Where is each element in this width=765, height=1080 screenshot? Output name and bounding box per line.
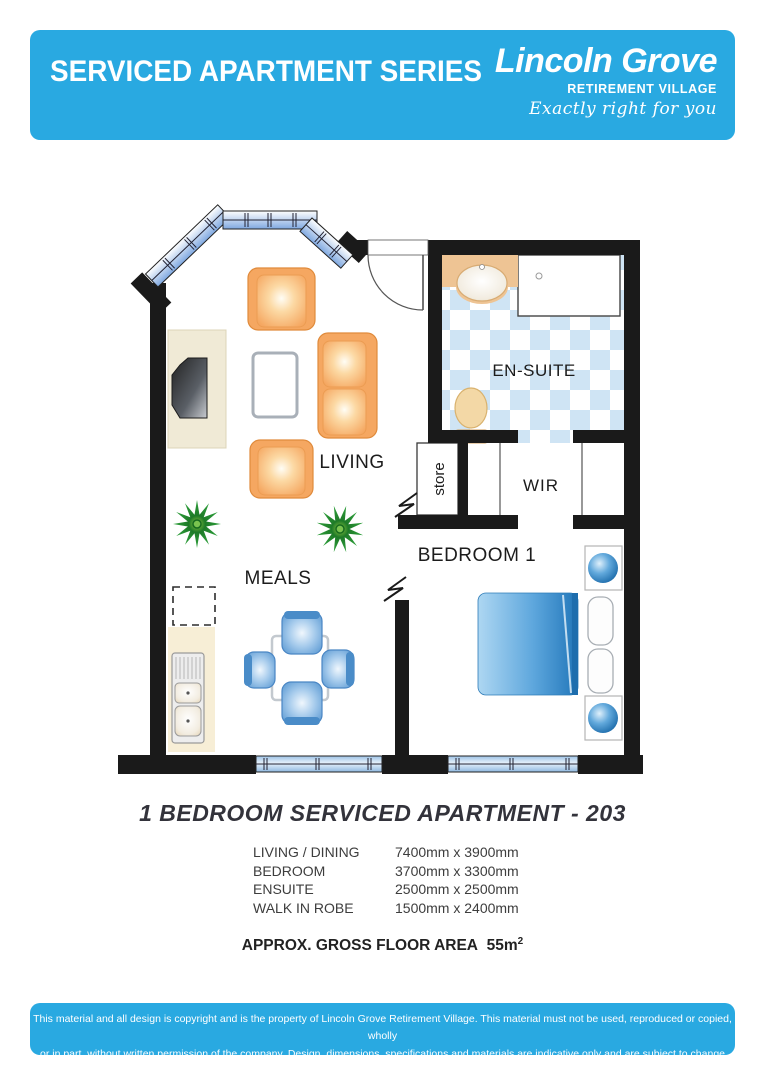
- brand-logo: Lincoln Grove RETIREMENT VILLAGE Exactly…: [495, 43, 717, 119]
- dining-chair-bottom: [282, 682, 322, 725]
- living-label: LIVING: [319, 452, 384, 473]
- sofa: [318, 333, 377, 438]
- meals-kitchen: [168, 587, 354, 752]
- header-banner: SERVICED APARTMENT SERIES Lincoln Grove …: [30, 30, 735, 140]
- shower-drain: [536, 273, 542, 279]
- footer-disclaimer: This material and all design is copyrigh…: [30, 1003, 735, 1055]
- dimension-label: ENSUITE: [253, 880, 395, 899]
- dimension-value: 2500mm x 2500mm: [395, 880, 519, 899]
- dining-chair-left: [244, 652, 275, 688]
- armchair-2: [250, 440, 313, 498]
- bedroom-label: BEDROOM 1: [418, 545, 537, 566]
- dimension-label: BEDROOM: [253, 862, 395, 881]
- window-bedroom: [448, 756, 578, 772]
- footer-line-2: or in part, without written permission o…: [30, 1046, 735, 1080]
- page: SERVICED APARTMENT SERIES Lincoln Grove …: [0, 0, 765, 1080]
- series-title: SERVICED APARTMENT SERIES: [50, 55, 482, 89]
- entry-door: [368, 240, 428, 310]
- floor-area-label: APPROX. GROSS FLOOR AREA: [242, 937, 478, 954]
- living-furniture: [168, 268, 377, 558]
- brand-tagline: Exactly right for you: [495, 99, 717, 119]
- dimension-label: WALK IN ROBE: [253, 899, 395, 918]
- coffee-table: [253, 353, 297, 417]
- dimension-value: 3700mm x 3300mm: [395, 862, 519, 881]
- vanity-sink: [457, 265, 507, 301]
- pillow-2: [588, 649, 613, 693]
- floor-area-sup: 2: [518, 936, 524, 947]
- floor-area: APPROX. GROSS FLOOR AREA 55m2: [0, 936, 765, 955]
- dining-chair-top: [282, 611, 322, 654]
- toilet-bowl: [455, 388, 487, 428]
- sink-tap: [480, 265, 485, 270]
- ensuite-label: EN-SUITE: [492, 361, 575, 380]
- ensuite-area: [442, 255, 624, 443]
- dimension-value: 1500mm x 2400mm: [395, 899, 519, 918]
- basin-2-drain: [186, 719, 189, 722]
- lamp-1: [588, 553, 618, 583]
- lamp-2: [588, 703, 618, 733]
- sink-drainer: [176, 657, 200, 679]
- brand-subtitle: RETIREMENT VILLAGE: [495, 82, 717, 96]
- shower: [518, 255, 620, 316]
- window-meals: [256, 756, 382, 772]
- bay-window-center: [223, 211, 317, 229]
- opening-symbol-1: [395, 493, 417, 517]
- bed-headboard: [572, 593, 578, 695]
- dimension-label: LIVING / DINING: [253, 843, 395, 862]
- wir-label: WIR: [523, 476, 559, 495]
- dimension-row: ENSUITE 2500mm x 2500mm: [253, 880, 519, 899]
- dimensions-table: LIVING / DINING 7400mm x 3900mm BEDROOM …: [253, 843, 519, 917]
- opening-symbol-2: [384, 577, 406, 601]
- dimension-value: 7400mm x 3900mm: [395, 843, 519, 862]
- plant-1: [173, 500, 221, 548]
- dimension-row: BEDROOM 3700mm x 3300mm: [253, 862, 519, 881]
- brand-name: Lincoln Grove: [495, 43, 717, 80]
- appliance-space-dashed: [173, 587, 215, 625]
- door-swing-arc: [368, 255, 423, 310]
- armchair-1: [248, 268, 315, 330]
- dimension-row: WALK IN ROBE 1500mm x 2400mm: [253, 899, 519, 918]
- basin-1-drain: [186, 691, 189, 694]
- dimension-row: LIVING / DINING 7400mm x 3900mm: [253, 843, 519, 862]
- plan-title: 1 BEDROOM SERVICED APARTMENT - 203: [0, 800, 765, 827]
- floor-plan: LIVING MEALS EN-SUITE WIR store BEDROOM …: [110, 190, 650, 790]
- ensuite-door-floor: [518, 430, 573, 443]
- pillow-1: [588, 597, 613, 645]
- floor-area-value: 55m: [487, 937, 518, 954]
- meals-label: MEALS: [245, 568, 312, 589]
- bedroom-furniture: [478, 546, 622, 740]
- bed: [478, 593, 578, 695]
- plant-2: [311, 500, 370, 559]
- store-label: store: [431, 462, 448, 495]
- footer-line-1: This material and all design is copyrigh…: [30, 1011, 735, 1046]
- dining-chair-right: [322, 650, 354, 688]
- bay-window-left: [146, 205, 231, 287]
